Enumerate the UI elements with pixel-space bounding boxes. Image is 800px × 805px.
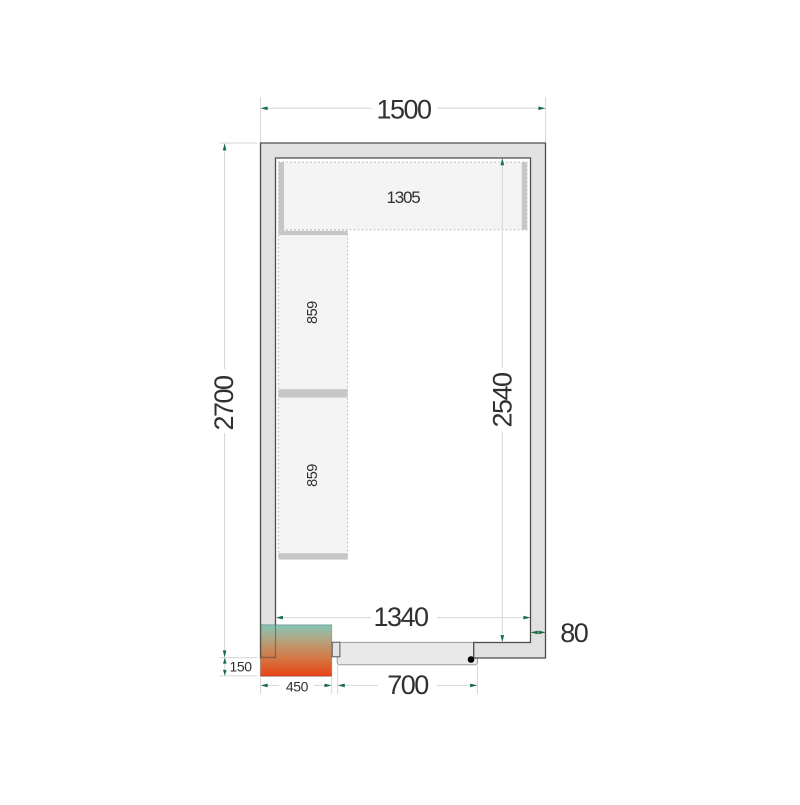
- svg-text:80: 80: [560, 618, 588, 648]
- svg-text:450: 450: [286, 679, 309, 695]
- svg-text:2540: 2540: [488, 373, 518, 428]
- svg-text:859: 859: [305, 464, 321, 487]
- svg-text:1500: 1500: [376, 94, 431, 124]
- svg-text:700: 700: [387, 670, 428, 700]
- svg-text:1305: 1305: [386, 188, 420, 207]
- svg-text:859: 859: [305, 301, 321, 324]
- svg-text:150: 150: [230, 658, 253, 674]
- svg-text:1340: 1340: [373, 602, 428, 632]
- svg-text:2700: 2700: [209, 376, 239, 431]
